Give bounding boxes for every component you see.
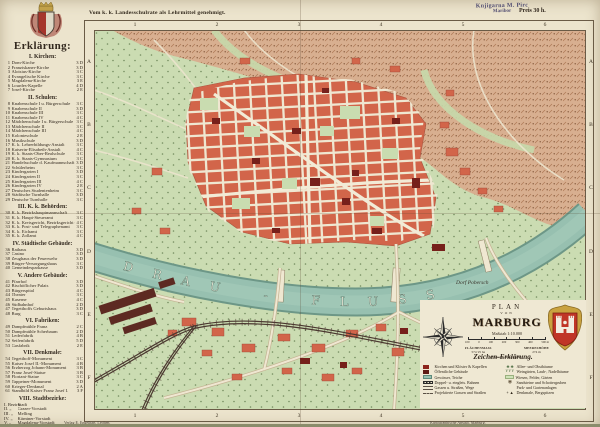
- legend-swatch: [505, 380, 515, 385]
- scale-bar-labels: 1000100200300400500 m: [465, 340, 549, 344]
- city-coat-of-arms-icon: [548, 304, 582, 352]
- legend-section-fabriken: VI. Fabriken: 49Dampfmühle Franz2 C50Dam…: [2, 318, 83, 348]
- legend-section-title: V. Andere Gebäude:: [2, 273, 83, 279]
- legend-swatch: [423, 393, 433, 394]
- legend-item: 61Standbild Kaiser Franz Josef I.3 F: [2, 389, 83, 394]
- legend-swatch: [505, 375, 514, 380]
- grid-letter: A: [586, 30, 596, 93]
- grid-number: 6: [504, 411, 586, 421]
- grid-numbers-bottom: 123456: [94, 411, 586, 421]
- legend-section-kirchen: I. Kirchen: 1Dom-Kirche3 D2Franziskaner-…: [2, 54, 83, 93]
- grid-letter: F: [84, 347, 94, 410]
- title-cartouche: PLAN VON MARBURG Maßstab 1:10.000 100010…: [420, 300, 586, 408]
- grid-letter: C: [586, 157, 596, 220]
- legend-section-title: I. Kirchen:: [2, 54, 83, 60]
- symbol-row: Denkmale, Bergspitzen: [505, 390, 584, 395]
- approval-note: Vom k. k. Landesschulrate als Lehrmittel…: [89, 10, 226, 16]
- grid-number: 3: [258, 20, 340, 30]
- grid-number: 2: [176, 411, 258, 421]
- grid-letters-right: ABCDEF: [586, 30, 596, 410]
- legend-section-title: VII. Denkmale:: [2, 350, 83, 356]
- legend-swatch: [423, 365, 429, 369]
- legend-swatch: [505, 369, 515, 374]
- legend-section-title: II. Schulen:: [2, 95, 83, 101]
- grid-letter: E: [84, 283, 94, 346]
- legend-section-title: III. K. k. Behörden:: [2, 204, 83, 210]
- legend-section-title: VIII. Stadtbezirke:: [2, 396, 83, 402]
- legend-item: 40Gemeindesparkasse3 D: [2, 266, 83, 271]
- map-scale: Maßstab 1:10.000: [464, 331, 550, 336]
- grid-number: 5: [422, 20, 504, 30]
- legend-item: 29Deutsche Turnhalle3 C: [2, 198, 83, 203]
- scale-tick: 300: [515, 340, 520, 344]
- legend-item: 35K. k. Zollamt4 C: [2, 234, 83, 239]
- grid-number: 4: [340, 411, 422, 421]
- grid-letter: F: [586, 347, 596, 410]
- map-title-block: PLAN VON MARBURG Maßstab 1:10.000 100010…: [464, 303, 550, 359]
- scale-tick: 0: [478, 340, 480, 344]
- legend-section-title: VI. Fabriken:: [2, 318, 83, 324]
- scale-tick: 100: [465, 340, 470, 344]
- symbol-row: Projektierte Gassen und Straßen: [423, 390, 502, 395]
- legend-swatch: [505, 390, 515, 395]
- map-sheet: Vom k. k. Landesschulrate als Lehrmittel…: [0, 0, 600, 427]
- legend-section-staedtische: IV. Städtische Gebäude: 36Rathaus3 D37Ca…: [2, 241, 83, 271]
- grid-letter: B: [586, 93, 596, 156]
- legend-swatch: [423, 381, 433, 384]
- legend-swatch: [423, 386, 433, 390]
- symbols-legend: Kirchen und Klöster & KapellenÖffentlich…: [423, 364, 584, 396]
- scale-tick: 200: [502, 340, 507, 344]
- grid-number: 1: [94, 20, 176, 30]
- legend-swatch: [423, 370, 429, 374]
- grid-letter: B: [84, 93, 94, 156]
- legend-section-denkmale: VII. Denkmale: 54Tegetthoff-Monument3 C5…: [2, 350, 83, 393]
- legend-section-behoerden: III. K. k. Behörden: 30K. k. Bezirkshaup…: [2, 204, 83, 238]
- grid-number: 4: [340, 20, 422, 30]
- grid-letter: D: [84, 220, 94, 283]
- grid-letter: A: [84, 30, 94, 93]
- grid-letter: D: [586, 220, 596, 283]
- legend-swatch: [423, 375, 432, 380]
- legend-item: 48Burg3 C: [2, 312, 83, 317]
- paper-fold-horizontal: [0, 213, 600, 214]
- grid-letters-left: ABCDEF: [84, 30, 94, 410]
- legend-section-schulen: II. Schulen: 8Knabenschule I u. Bürgersc…: [2, 95, 83, 202]
- title-plan: PLAN: [464, 303, 550, 311]
- legend-item: 7Josef-Kirche2 E: [2, 88, 83, 93]
- scale-tick: 400: [528, 340, 533, 344]
- price-label: Preis 30 h.: [519, 8, 546, 14]
- grid-number: 3: [258, 411, 340, 421]
- legend-panel: Erklärung: I. Kirchen: 1Dom-Kirche3 D2Fr…: [2, 40, 83, 425]
- scale-tick: 100: [488, 340, 493, 344]
- grid-numbers-top: 123456: [94, 20, 586, 30]
- grid-number: 2: [176, 20, 258, 30]
- legend-section-title: IV. Städtische Gebäude:: [2, 241, 83, 247]
- grid-number: 6: [504, 20, 586, 30]
- title-city: MARBURG: [464, 315, 550, 330]
- legend-title: Erklärung:: [2, 40, 83, 52]
- grid-letter: C: [84, 157, 94, 220]
- legend-section-andere: V. Andere Gebäude: 41Pfarrhof3 D42Bischö…: [2, 273, 83, 316]
- imperial-crest-icon: [26, 2, 66, 40]
- symbols-legend-title: Zeichen-Erklärung.: [420, 353, 586, 361]
- legend-item: 53Gasfabrik2 E: [2, 344, 83, 349]
- grid-letter: E: [586, 283, 596, 346]
